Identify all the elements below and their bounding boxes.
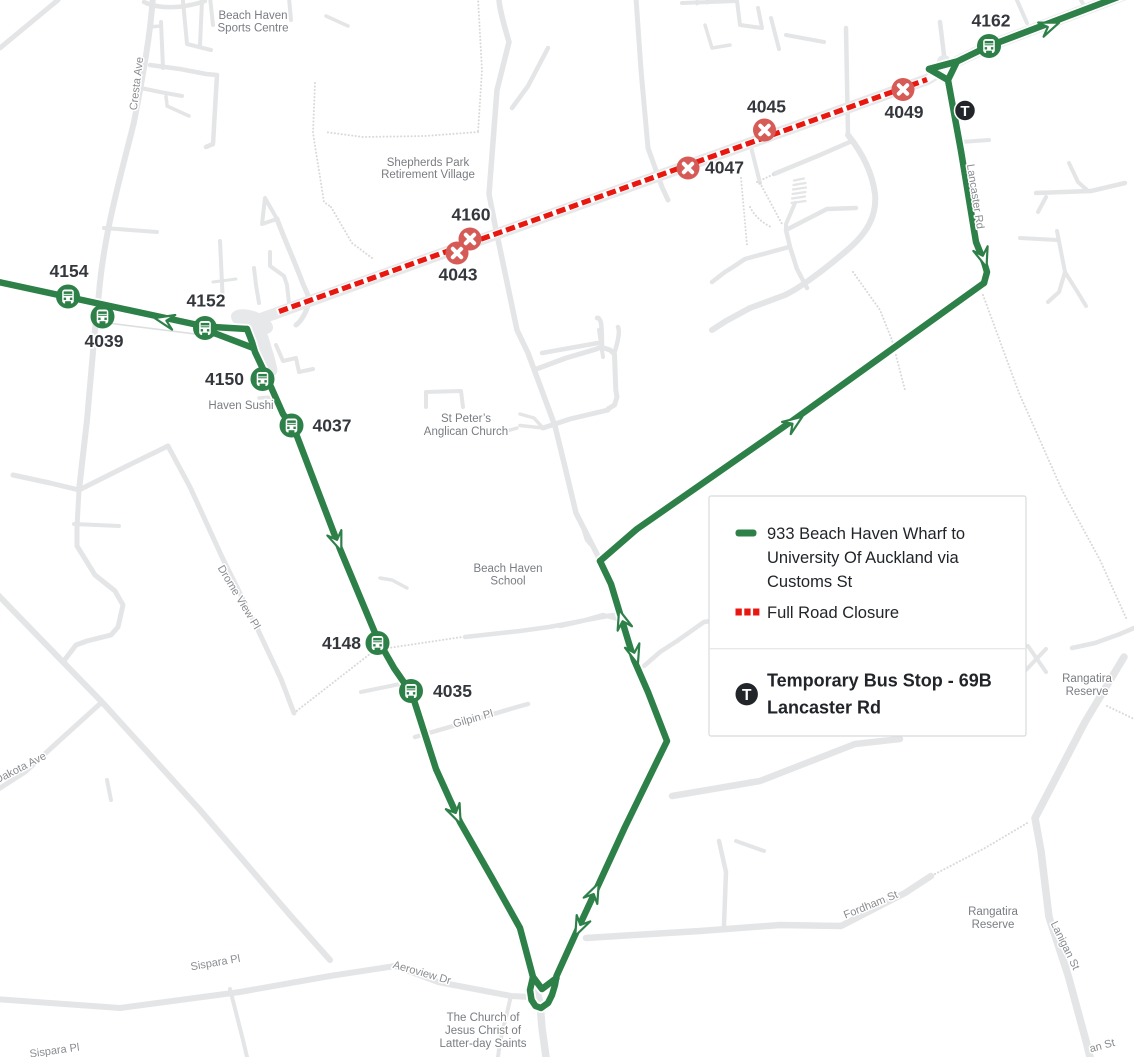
svg-text:Rangatira: Rangatira bbox=[968, 906, 1018, 918]
svg-text:Beach Haven: Beach Haven bbox=[473, 563, 542, 575]
svg-text:Full Road Closure: Full Road Closure bbox=[767, 604, 899, 622]
svg-text:Beach Haven: Beach Haven bbox=[218, 10, 287, 22]
svg-text:Customs St: Customs St bbox=[767, 573, 853, 591]
svg-text:4037: 4037 bbox=[313, 416, 352, 436]
svg-text:School: School bbox=[490, 576, 525, 588]
svg-text:4049: 4049 bbox=[885, 102, 924, 122]
svg-text:933 Beach Haven Wharf to: 933 Beach Haven Wharf to bbox=[767, 525, 965, 543]
svg-text:4047: 4047 bbox=[705, 158, 744, 178]
svg-text:4152: 4152 bbox=[187, 291, 226, 311]
svg-text:T: T bbox=[960, 103, 969, 120]
svg-text:4045: 4045 bbox=[747, 97, 786, 117]
svg-text:4160: 4160 bbox=[452, 205, 491, 225]
svg-text:Sports Centre: Sports Centre bbox=[218, 23, 289, 35]
svg-text:4154: 4154 bbox=[50, 261, 89, 281]
svg-text:The Church of: The Church of bbox=[447, 1012, 521, 1024]
svg-text:4039: 4039 bbox=[85, 331, 124, 351]
svg-text:Lancaster Rd: Lancaster Rd bbox=[767, 698, 881, 718]
svg-text:4162: 4162 bbox=[972, 11, 1011, 31]
svg-text:Temporary Bus Stop - 69B: Temporary Bus Stop - 69B bbox=[767, 671, 992, 691]
svg-text:4043: 4043 bbox=[439, 265, 478, 285]
svg-text:Latter-day Saints: Latter-day Saints bbox=[440, 1038, 527, 1050]
svg-text:St Peter’s: St Peter’s bbox=[441, 413, 491, 425]
svg-text:Jesus Christ of: Jesus Christ of bbox=[445, 1025, 522, 1037]
svg-text:Retirement Village: Retirement Village bbox=[381, 169, 475, 181]
svg-text:Shepherds Park: Shepherds Park bbox=[387, 157, 470, 169]
svg-text:4150: 4150 bbox=[205, 369, 244, 389]
svg-text:University Of Auckland via: University Of Auckland via bbox=[767, 549, 959, 567]
svg-text:Reserve: Reserve bbox=[972, 919, 1015, 931]
svg-text:Anglican Church: Anglican Church bbox=[424, 426, 508, 438]
svg-text:4148: 4148 bbox=[322, 633, 361, 653]
svg-text:Haven Sushi: Haven Sushi bbox=[208, 400, 273, 412]
svg-text:Reserve: Reserve bbox=[1066, 686, 1109, 698]
svg-text:4035: 4035 bbox=[433, 681, 472, 701]
svg-text:T: T bbox=[742, 687, 752, 704]
svg-text:Rangatira: Rangatira bbox=[1062, 673, 1112, 685]
